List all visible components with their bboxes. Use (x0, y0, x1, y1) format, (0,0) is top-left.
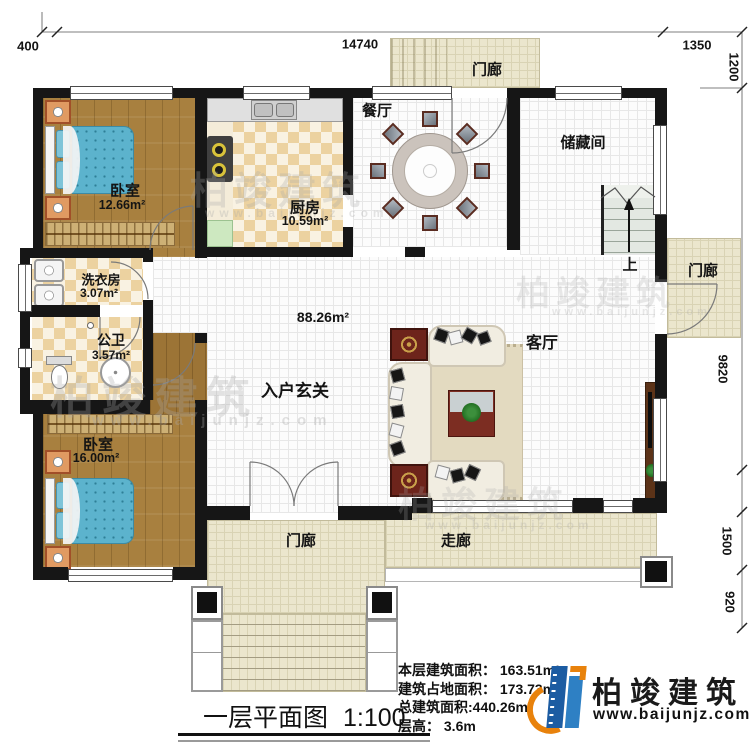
window (653, 125, 667, 215)
wall-segment (143, 300, 153, 400)
washing-machine (34, 284, 64, 307)
room-area-bedroom1: 12.66m² (99, 198, 146, 212)
kitchen-mat (207, 220, 233, 247)
wall-segment (195, 333, 207, 343)
dim-right-9820: 9820 (716, 355, 731, 384)
nightstand (45, 100, 71, 124)
bed-headboard (45, 126, 55, 194)
wall-segment (207, 506, 250, 520)
bed-headboard (45, 478, 55, 544)
room-label-living: 客厅 (526, 329, 558, 353)
window (653, 398, 667, 482)
entry-steps (222, 614, 366, 692)
room-area-bedroom2: 16.00m² (73, 451, 120, 465)
wall-segment (343, 88, 353, 195)
toilet-bowl (51, 365, 68, 389)
wall-segment (338, 506, 412, 520)
toilet-tank (46, 356, 72, 365)
room-label-corridor: 走廊 (441, 530, 471, 551)
dim-right-920: 920 (723, 591, 738, 613)
porch-column-core (197, 592, 217, 613)
column-pedestal (366, 620, 398, 692)
sofa-pillow (389, 386, 404, 401)
wall-segment (412, 498, 432, 513)
nightstand (45, 450, 71, 474)
stove-burner (212, 143, 226, 157)
dining-chair (422, 215, 438, 231)
room-label-foyer: 入户玄关 (261, 377, 329, 402)
porch-column-core (372, 592, 392, 613)
window (603, 500, 633, 513)
wall-segment (33, 414, 43, 567)
porch-right-floor (667, 238, 741, 338)
pull-switch (87, 322, 94, 329)
wall-segment (20, 400, 150, 414)
wardrobe (47, 414, 173, 434)
stair-landing (604, 185, 655, 198)
dim-right-1500: 1500 (720, 527, 735, 556)
wall-segment (655, 88, 667, 125)
wall-segment (33, 88, 43, 258)
dim-right-1200: 1200 (727, 53, 742, 82)
dim-top-1350: 1350 (683, 38, 712, 53)
room-label-porch-top: 门廊 (472, 59, 502, 80)
wall-segment (195, 88, 207, 258)
room-label-bathroom: 公卫 (97, 330, 125, 350)
wardrobe (45, 222, 175, 246)
window (432, 500, 573, 513)
wall-segment (173, 567, 207, 580)
dim-top-400: 400 (17, 39, 39, 54)
sofa-pillow (390, 404, 405, 419)
stairs-up-label: 上 (622, 254, 637, 275)
sink-basin (276, 103, 294, 117)
window (243, 86, 310, 100)
washing-machine (34, 259, 64, 282)
wall-segment (655, 334, 667, 398)
wall-segment (633, 498, 667, 513)
wall-segment (343, 227, 353, 257)
side-table (390, 328, 428, 361)
wall-segment (33, 248, 150, 258)
wall-segment (20, 305, 100, 317)
stove-burner (212, 163, 226, 177)
dining-chair (474, 163, 490, 179)
logo-roof-icon (569, 666, 586, 680)
window (18, 348, 32, 368)
room-area-kitchen: 10.59m² (282, 214, 329, 228)
window (68, 569, 173, 582)
plan-title-text: 一层平面图 (203, 704, 328, 732)
dining-table-center (423, 164, 437, 178)
bed-mattress (72, 478, 134, 544)
logo-building-icon (565, 676, 584, 728)
wall-segment (310, 88, 372, 98)
corridor-step-edge (385, 568, 658, 582)
wall-segment (573, 498, 603, 513)
wall-segment (207, 247, 353, 257)
room-label-porch-bottom: 门廊 (286, 530, 316, 551)
open-area-value: 88.26m² (297, 309, 349, 325)
room-label-dining: 餐厅 (362, 100, 392, 121)
column-pedestal (191, 620, 223, 692)
wall-segment (655, 215, 667, 282)
porch-top-planks (391, 39, 447, 87)
plan-scale: 1:100 (343, 704, 406, 732)
wall-segment (20, 312, 30, 348)
wall-segment (507, 88, 520, 250)
hall-nook-floor (153, 257, 207, 333)
stair-wall (601, 185, 604, 255)
wall-segment (405, 247, 425, 257)
corridor-floor (385, 513, 657, 568)
stair-treads (604, 198, 655, 254)
room-label-storage: 储藏间 (560, 132, 605, 153)
dining-chair (422, 111, 438, 127)
stat-floor-area: 本层建筑面积： 163.51m² (398, 661, 560, 680)
tv (648, 392, 652, 448)
wall-segment (20, 368, 30, 400)
room-area-laundry: 3.07m² (80, 286, 118, 300)
room-label-porch-right: 门廊 (688, 260, 718, 281)
window (555, 86, 622, 100)
brand-website: www.baijunjz.com (593, 706, 750, 724)
wall-segment (33, 567, 68, 580)
window (70, 86, 173, 100)
side-table (390, 464, 428, 497)
plan-title: 一层平面图 1:100 (203, 698, 406, 734)
wall-segment (195, 400, 207, 580)
wall-segment (20, 248, 30, 264)
window (18, 264, 32, 312)
window (372, 86, 452, 100)
wall-segment (173, 88, 243, 98)
title-underline-thin (178, 740, 430, 742)
bedroom2-doorway-floor (150, 400, 195, 414)
nightstand (45, 196, 71, 220)
room-area-bathroom: 3.57m² (92, 348, 130, 362)
plant (462, 403, 481, 422)
title-underline (178, 733, 430, 736)
dining-chair (370, 163, 386, 179)
corner-column-core (645, 561, 667, 582)
sink-basin (254, 103, 273, 117)
dim-top-14740: 14740 (342, 37, 378, 52)
floor-plan: 柏竣建筑 www.baijunjz.com 柏竣建筑 www.baijunjz.… (0, 0, 750, 746)
